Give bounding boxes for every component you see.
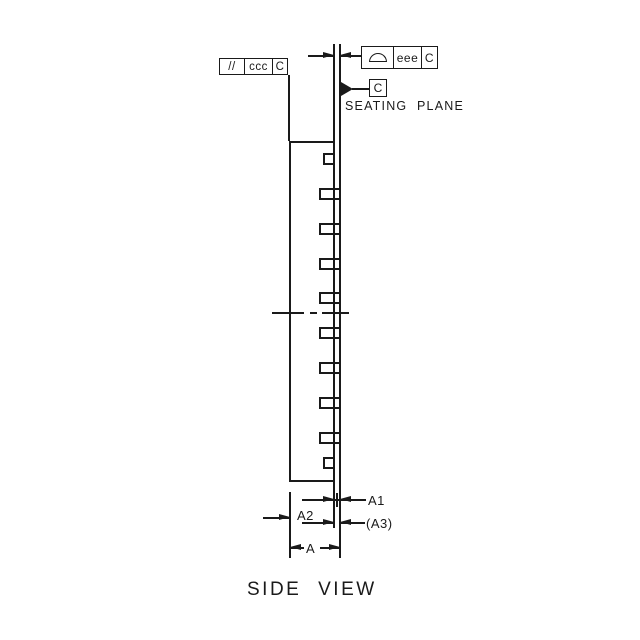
seating-plane-label: SEATING PLANE — [345, 99, 464, 113]
arrowhead-right-icon — [323, 52, 334, 58]
parallelism-datum-ref: C — [272, 59, 287, 74]
centerline-segment — [322, 312, 349, 314]
profile-tolerance-value: eee — [393, 47, 421, 68]
a3-dim-line — [340, 522, 365, 524]
lead-tab — [319, 432, 341, 444]
profile-datum-ref: C — [421, 47, 437, 68]
feature-control-frame-parallelism: // ccc C — [219, 58, 288, 75]
arrowhead-right-icon — [279, 514, 290, 520]
arrowhead-right-icon — [323, 519, 334, 525]
a1-tick — [336, 493, 338, 507]
dim-label-a1: A1 — [368, 493, 385, 508]
lead-tab — [319, 223, 341, 235]
profile-symbol-cell — [362, 47, 393, 68]
arrowhead-right-icon — [329, 544, 340, 550]
dim-label-a: A — [306, 541, 315, 556]
a1-dim-line — [302, 499, 340, 501]
datum-c-box: C — [369, 79, 387, 97]
datum-leader-line — [352, 88, 369, 90]
centerline-segment — [310, 312, 317, 314]
parallelism-icon: // — [220, 59, 244, 74]
lead-end-square — [323, 457, 335, 469]
dim-label-a3: (A3) — [366, 516, 393, 531]
feature-control-frame-profile: eee C — [361, 46, 438, 69]
fcf-leader-line — [288, 75, 290, 141]
lead-tab — [319, 258, 341, 270]
lead-tab — [319, 188, 341, 200]
lead-tab — [319, 327, 341, 339]
lead-tab — [319, 397, 341, 409]
lead-tab — [319, 292, 341, 304]
parallelism-tolerance-value: ccc — [244, 59, 272, 74]
a1-dim-line-right — [340, 499, 366, 501]
arrowhead-right-icon — [323, 496, 334, 502]
view-title: SIDE VIEW — [247, 579, 377, 601]
lead-tab — [319, 362, 341, 374]
a-dim-line-left — [290, 547, 304, 549]
lead-end-square — [323, 153, 335, 165]
technical-drawing-canvas: // ccc C eee C C SEATING PLANE A1 A2 — [0, 0, 640, 640]
eee-dim-line-right — [340, 55, 361, 57]
profile-of-surface-icon — [369, 53, 387, 62]
dim-label-a2: A2 — [297, 508, 314, 523]
centerline-segment — [272, 312, 304, 314]
lead-tip-plane-extension-top — [333, 44, 335, 141]
